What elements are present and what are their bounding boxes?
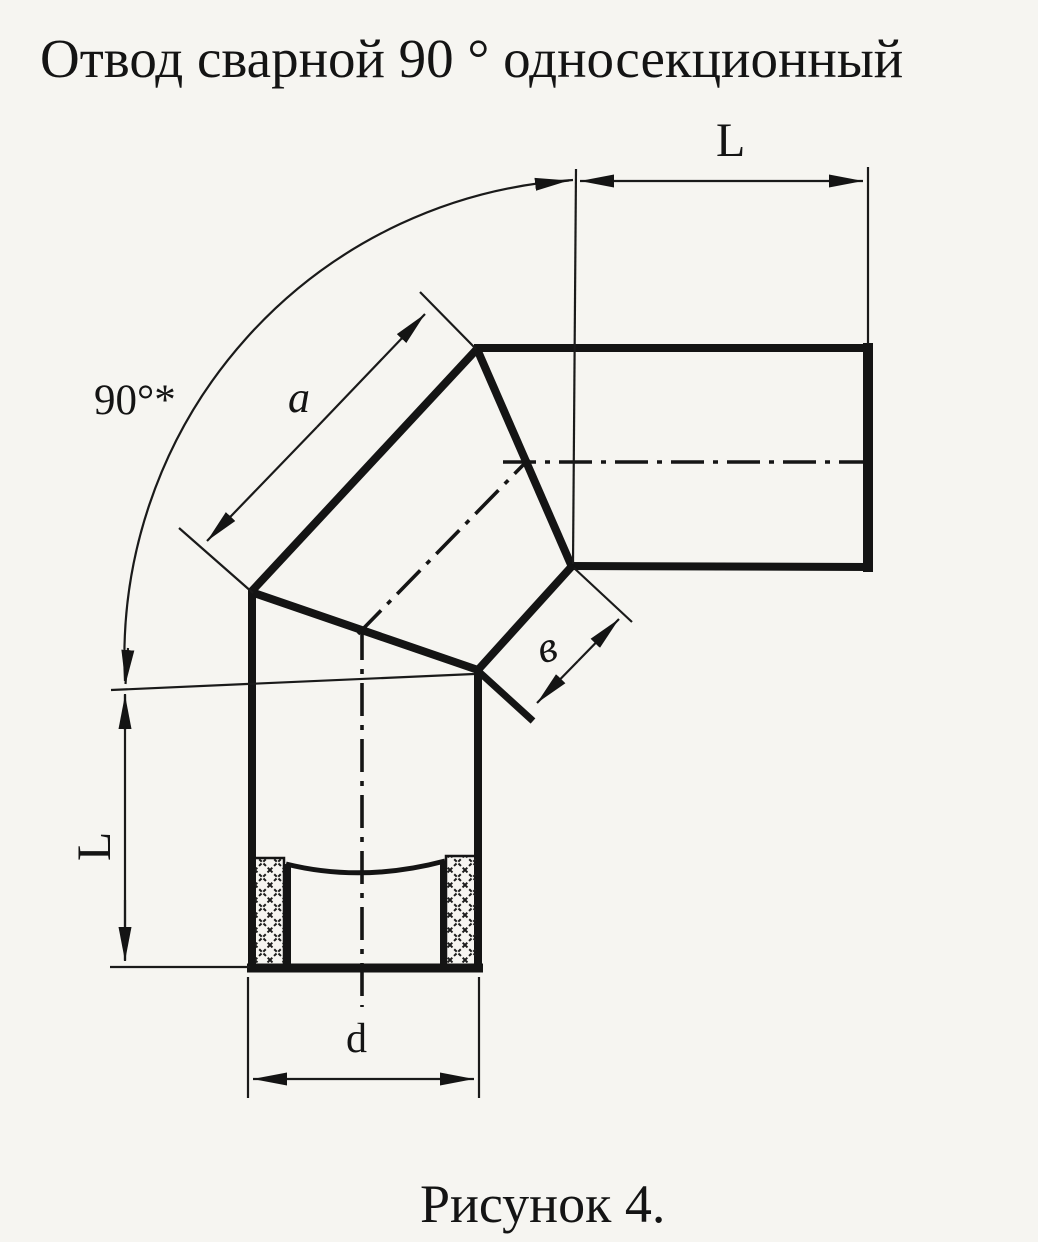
diameter-label: d: [346, 1016, 367, 1062]
angle-dimension: 90°*: [94, 180, 573, 684]
figure-4-elbow-drawing: Отвод сварной 90 ° односекционный 9: [0, 0, 1038, 1242]
inner-pipe-end-curve: [286, 861, 445, 873]
length-left-label: L: [68, 832, 121, 861]
dim-line-upper-arrow: [578, 619, 619, 661]
pipe-bottom-edge: [570, 566, 870, 567]
weld-seam-upper: [477, 349, 572, 567]
segment-outer-side-a: [251, 349, 477, 592]
extension-line: [574, 568, 632, 622]
middle-segment-centerline: [358, 459, 529, 634]
weld-seam-lower: [251, 592, 478, 670]
extension-line: [179, 528, 253, 593]
dim-line-upper-arrow: [317, 314, 425, 427]
packing-hatch-right: [446, 856, 477, 965]
angle-label: 90°*: [94, 377, 176, 424]
length-top-label: L: [716, 114, 745, 167]
extension-line: [420, 292, 476, 349]
socket-detail: [254, 856, 477, 966]
dim-line-lower-arrow: [207, 427, 317, 541]
horizontal-pipe: [474, 343, 872, 572]
extension-line: [573, 169, 576, 564]
scanned-drawing-sheet: Отвод сварной 90 ° односекционный 9: [0, 0, 1038, 1242]
extension-line-top: [111, 674, 474, 690]
narrow-side-face-line: [477, 670, 533, 721]
centerlines: [358, 459, 877, 1007]
dimension-L-top: L: [573, 114, 868, 564]
packing-hatch-left: [254, 858, 284, 965]
arc-arrow-bottom: [126, 648, 129, 684]
angle-arc: [124, 180, 573, 681]
figure-caption: Рисунок 4.: [420, 1174, 665, 1234]
drawing-title: Отвод сварной 90 ° односекционный: [40, 28, 903, 89]
segment-side-label: a: [288, 373, 310, 422]
narrow-side-label: в: [531, 621, 563, 673]
dimension-v: в: [531, 568, 632, 703]
dimension-a: a: [179, 292, 476, 593]
